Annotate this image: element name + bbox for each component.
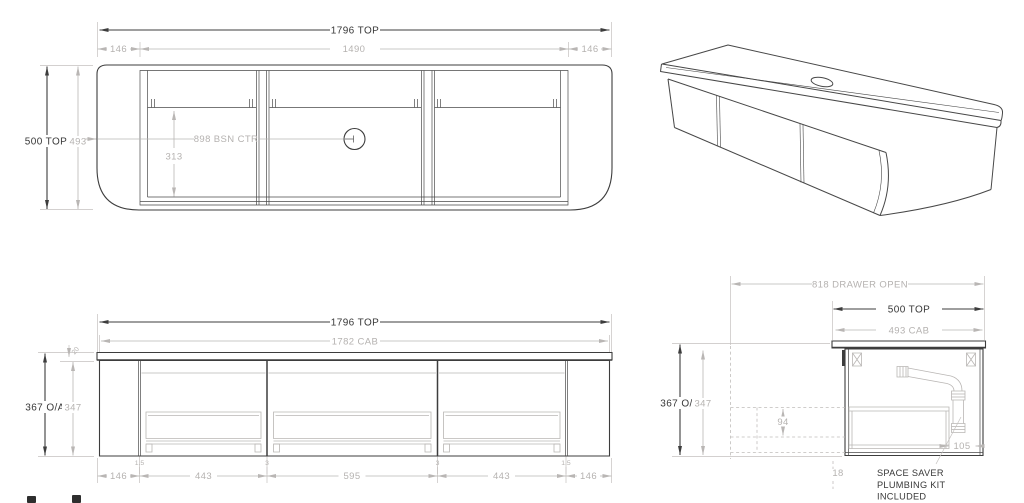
side-plumbing-trap bbox=[897, 367, 965, 433]
vanity-spec-drawing: 1796 TOP 146 1490 146 500 TOP 493 bbox=[0, 0, 1024, 503]
plan-dim-overall-depth: 500 TOP bbox=[23, 67, 70, 210]
plan-overall-depth-label: 500 TOP bbox=[25, 137, 67, 148]
plan-view: 1796 TOP 146 1490 146 500 TOP 493 bbox=[0, 0, 645, 250]
side-countertop bbox=[832, 341, 986, 348]
side-overall-depth-label: 500 TOP bbox=[888, 305, 930, 316]
partial-logo-fragment-2 bbox=[72, 495, 81, 503]
plan-overall-width-label: 1796 TOP bbox=[331, 26, 379, 37]
front-cabinet-body bbox=[100, 361, 610, 457]
front-dim-146L: 146 bbox=[110, 471, 127, 482]
side-cabinet-section bbox=[842, 349, 983, 456]
front-gap3-label: 3 bbox=[436, 460, 440, 467]
front-cab-width-label: 1782 CAB bbox=[332, 337, 379, 348]
side-trap-offset-label: 105 bbox=[953, 441, 970, 452]
iso-basin-hole bbox=[810, 76, 833, 89]
front-dim-595: 595 bbox=[343, 471, 360, 482]
plan-basin-centre-label: 898 BSN CTR bbox=[194, 134, 259, 145]
front-gap1-label: 1.5 bbox=[135, 460, 145, 467]
partial-logo-fragment-1 bbox=[27, 496, 36, 503]
front-dim-overall-height: 367 O/A bbox=[22, 354, 68, 456]
front-dim-cab-height: 347 bbox=[62, 362, 84, 456]
side-section: 818 DRAWER OPEN 500 TOP 493 CAB bbox=[645, 250, 1024, 503]
side-note-line2: PLUMBING KIT bbox=[877, 480, 946, 490]
front-drawer-internals bbox=[142, 373, 565, 452]
plan-left-end-label: 146 bbox=[110, 44, 127, 55]
front-cab-height-label: 347 bbox=[64, 403, 81, 414]
side-wall-gap-label: 18 bbox=[832, 468, 843, 479]
plan-basin-setback-label: 313 bbox=[165, 152, 182, 163]
plan-dim-ends-and-cab: 146 1490 146 bbox=[98, 43, 612, 55]
side-cab-depth-label: 493 CAB bbox=[889, 326, 930, 337]
plan-cab-depth-label: 493 bbox=[69, 137, 86, 148]
side-wall-brackets bbox=[853, 353, 976, 366]
side-cab-height-label: 347 bbox=[694, 399, 711, 410]
side-drawer-clearance-label: 94 bbox=[777, 417, 788, 428]
plan-dim-basin-setback: 313 bbox=[165, 111, 182, 197]
side-extension-lines bbox=[672, 276, 985, 457]
side-dim-cab-height: 347 bbox=[692, 351, 714, 456]
side-drawer-open-label: 818 DRAWER OPEN bbox=[812, 280, 908, 291]
front-dim-146R: 146 bbox=[580, 471, 597, 482]
iso-countertop bbox=[661, 45, 1003, 128]
front-elevation: 1796 TOP 1782 CAB bbox=[0, 250, 645, 503]
isometric-view bbox=[645, 0, 1024, 250]
side-note-line3: INCLUDED bbox=[877, 492, 926, 502]
side-note-line1: SPACE SAVER bbox=[877, 468, 944, 478]
front-dim-top-thickness: 20 bbox=[69, 345, 81, 357]
side-drawer-front-edge bbox=[842, 350, 845, 366]
front-gap4-label: 1.5 bbox=[561, 460, 571, 467]
plan-dim-cab-depth: 493 bbox=[67, 67, 89, 210]
front-dim-bottom-row: 146 443 595 443 146 bbox=[98, 471, 612, 483]
side-dim-overall-depth: 500 TOP bbox=[834, 305, 984, 316]
front-overall-width-label: 1796 TOP bbox=[331, 318, 379, 329]
side-dim-cab-depth: 493 CAB bbox=[836, 326, 983, 337]
side-dim-drawer-clearance: 94 bbox=[775, 409, 791, 436]
front-overall-height-label: 367 O/A bbox=[25, 403, 65, 414]
front-dim-443R: 443 bbox=[493, 471, 510, 482]
front-extension-lines bbox=[38, 314, 612, 483]
plan-right-end-label: 146 bbox=[581, 44, 598, 55]
side-drawer-box bbox=[849, 407, 949, 449]
iso-cabinet bbox=[668, 79, 997, 216]
plan-dim-overall-width: 1796 TOP bbox=[100, 26, 610, 37]
front-dim-cab-width: 1782 CAB bbox=[101, 337, 608, 348]
front-dim-443L: 443 bbox=[195, 471, 212, 482]
front-countertop bbox=[97, 353, 612, 361]
side-dim-drawer-open: 818 DRAWER OPEN bbox=[732, 280, 984, 291]
plan-dim-basin-centre: 898 BSN CTR bbox=[85, 134, 343, 145]
front-gap2-label: 3 bbox=[265, 460, 269, 467]
plan-cab-width-label: 1490 bbox=[343, 44, 366, 55]
front-top-thickness-label: 20 bbox=[71, 346, 81, 356]
front-dim-overall-width: 1796 TOP bbox=[100, 318, 610, 329]
side-plumbing-note: SPACE SAVER PLUMBING KIT INCLUDED bbox=[877, 468, 946, 502]
plan-basin-hole bbox=[344, 129, 365, 150]
